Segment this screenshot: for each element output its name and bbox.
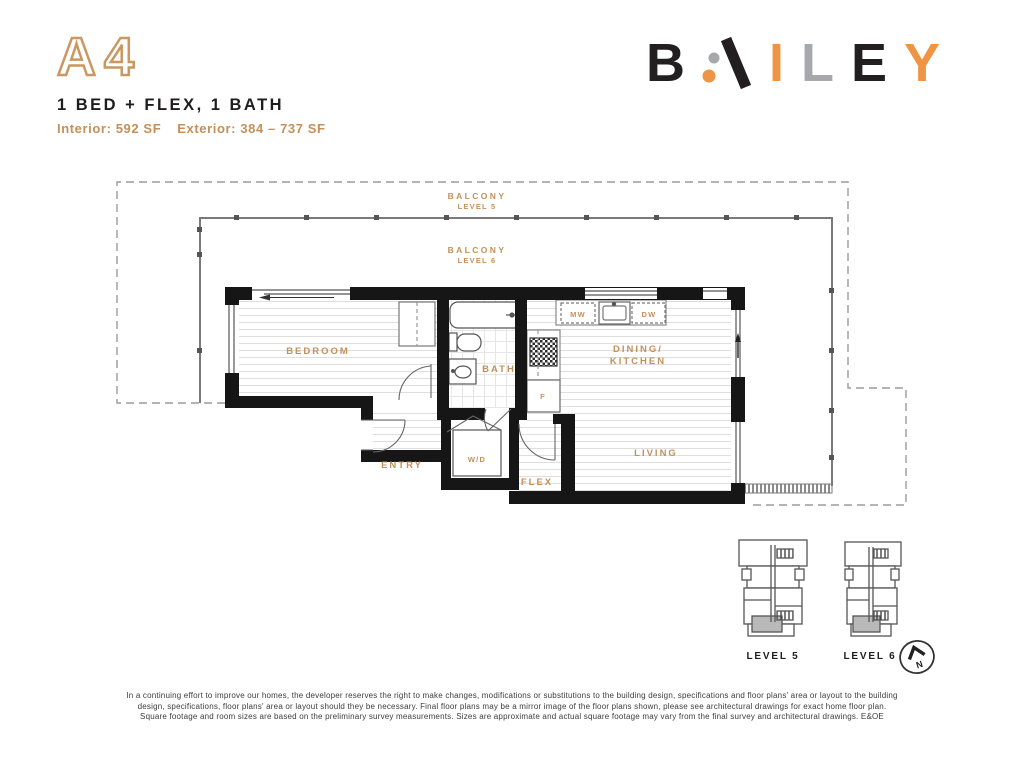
washer-dryer bbox=[453, 430, 501, 476]
entry-label: ENTRY bbox=[381, 460, 423, 471]
keyplan-level5 bbox=[739, 540, 807, 636]
toilet-bowl bbox=[457, 334, 481, 351]
disclaimer-line1: In a continuing effort to improve our ho… bbox=[92, 691, 932, 702]
stove-icon bbox=[530, 338, 557, 366]
bath-door-leaf bbox=[488, 409, 511, 431]
entry-floor bbox=[373, 408, 441, 450]
wd-label: W/D bbox=[468, 455, 486, 464]
disclaimer-line3: Square footage and room sizes are based … bbox=[92, 712, 932, 723]
balcony5-level-label: LEVEL 5 bbox=[458, 202, 497, 211]
kitchen-window bbox=[585, 288, 657, 299]
balcony6-label: BALCONY bbox=[448, 245, 507, 255]
mw-label: MW bbox=[570, 310, 586, 319]
corner-window bbox=[703, 288, 727, 299]
floor-plan: BALCONY LEVEL 5 BALCONY LEVEL 6 BEDROOM … bbox=[0, 0, 1024, 768]
bedroom-label: BEDROOM bbox=[286, 346, 350, 357]
living-window bbox=[731, 422, 745, 483]
toilet-tank bbox=[449, 333, 457, 351]
dining-label-line1: DINING/ bbox=[613, 344, 663, 355]
dining-label-line2: KITCHEN bbox=[610, 356, 666, 367]
living-label: LIVING bbox=[634, 448, 678, 459]
entry-door-opening bbox=[361, 420, 373, 450]
disclaimer-line2: design, specifications, floor plans' are… bbox=[92, 702, 932, 713]
keyplan-level6-label: LEVEL 6 bbox=[844, 651, 897, 662]
bath-label: BATH bbox=[482, 364, 516, 375]
fridge-label: F bbox=[540, 392, 546, 401]
balcony6-level-label: LEVEL 6 bbox=[458, 256, 497, 265]
dw-label: DW bbox=[642, 310, 657, 319]
north-arrow-icon: N bbox=[896, 637, 938, 678]
flex-label: FLEX bbox=[521, 477, 553, 488]
bedroom-window bbox=[225, 305, 239, 373]
disclaimer: In a continuing effort to improve our ho… bbox=[92, 691, 932, 723]
balcony-railing bbox=[745, 484, 832, 493]
balcony5-label: BALCONY bbox=[448, 191, 507, 201]
keyplan-level5-label: LEVEL 5 bbox=[747, 651, 800, 662]
keyplan-level6 bbox=[845, 542, 901, 636]
